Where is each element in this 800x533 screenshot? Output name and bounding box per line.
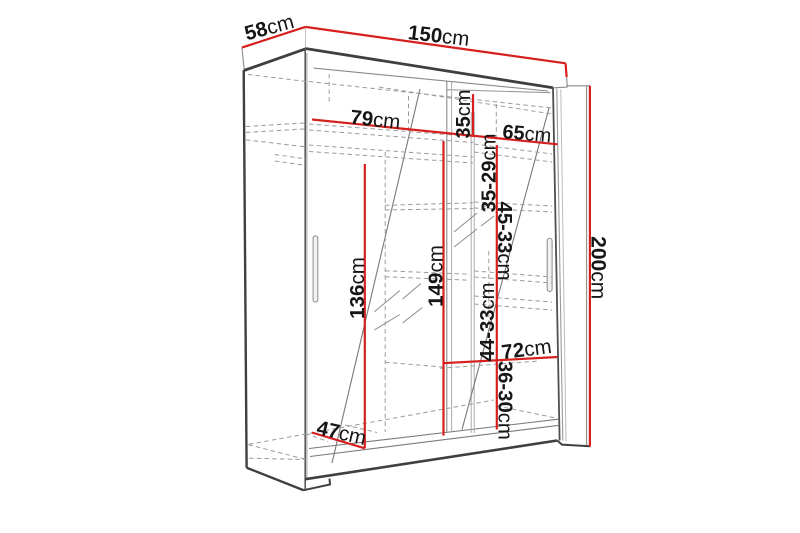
svg-text:47cm: 47cm (314, 416, 368, 450)
svg-text:200cm: 200cm (587, 236, 610, 299)
svg-text:45-33cm: 45-33cm (493, 202, 515, 281)
svg-text:149cm: 149cm (424, 245, 447, 307)
svg-text:136cm: 136cm (346, 257, 369, 319)
svg-text:72cm: 72cm (500, 335, 553, 364)
svg-text:35cm: 35cm (453, 90, 475, 139)
svg-text:36-30cm: 36-30cm (494, 361, 516, 440)
svg-text:65cm: 65cm (501, 121, 552, 147)
svg-text:44-33cm: 44-33cm (477, 282, 499, 361)
svg-text:35-29cm: 35-29cm (478, 133, 500, 212)
svg-text:79cm: 79cm (349, 106, 401, 134)
